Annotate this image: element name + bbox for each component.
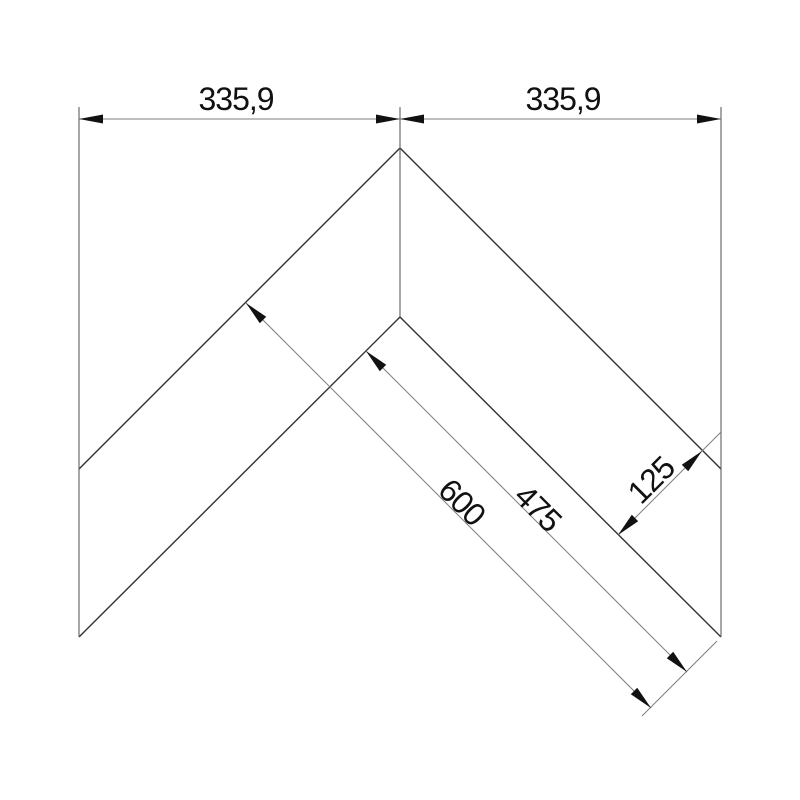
arrowhead-center-leftward	[400, 115, 424, 124]
dim-label-125: 125	[620, 449, 681, 510]
arrowhead-center-rightward	[376, 115, 400, 124]
technical-drawing-canvas: 335,9 335,9 600 475 125	[0, 0, 800, 800]
outer-right-edge	[400, 148, 721, 469]
corner-profile-drawing: 335,9 335,9 600 475 125	[0, 0, 800, 800]
dim-label-top-left: 335,9	[198, 81, 273, 117]
dim-label-475: 475	[507, 477, 568, 538]
dimension-labels: 335,9 335,9 600 475 125	[198, 81, 681, 539]
arrowhead-right-outward	[697, 115, 721, 124]
arrowhead-left-outward	[79, 115, 103, 124]
bottom-right-extension-line	[642, 641, 717, 716]
inner-left-edge	[79, 317, 400, 637]
dim-label-600: 600	[431, 471, 492, 532]
outer-left-edge	[79, 148, 400, 469]
dim-label-top-right: 335,9	[525, 81, 600, 117]
